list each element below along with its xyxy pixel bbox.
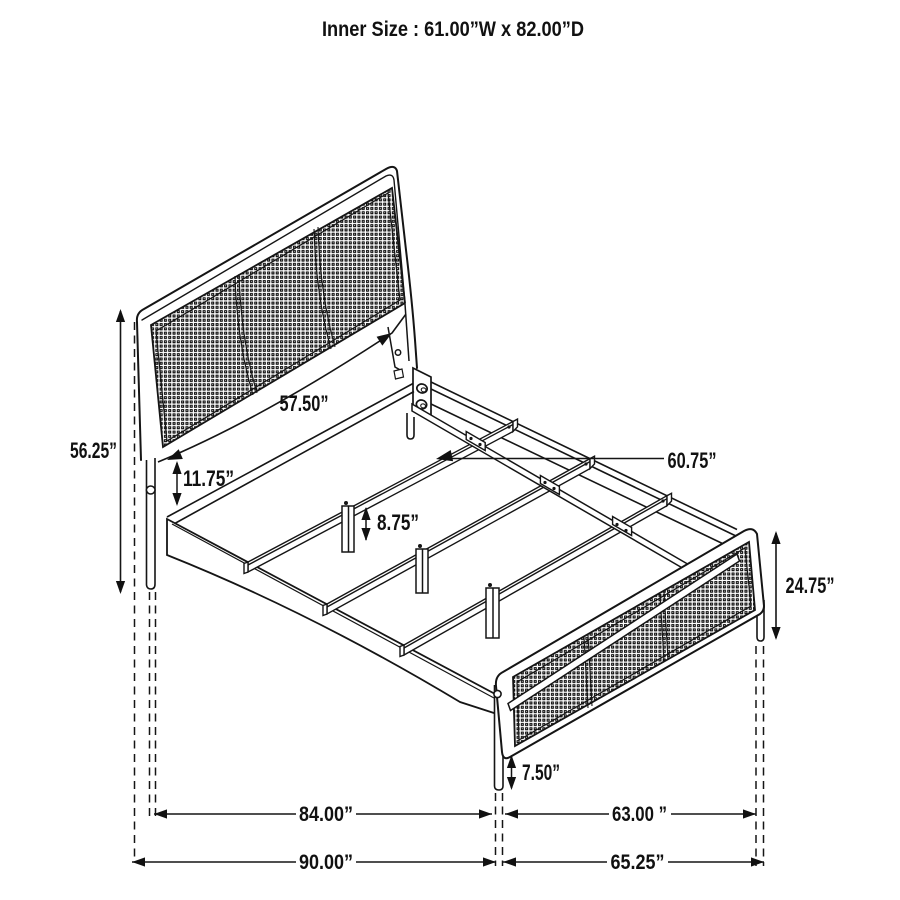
svg-text:56.25”: 56.25”	[70, 438, 117, 463]
svg-text:8.75”: 8.75”	[377, 510, 419, 535]
svg-text:65.25”: 65.25”	[611, 851, 665, 874]
svg-text:7.50”: 7.50”	[522, 760, 560, 785]
svg-text:57.50”: 57.50”	[280, 391, 329, 416]
svg-text:60.75”: 60.75”	[668, 448, 717, 473]
svg-text:Inner Size : 61.00”W x 82.00”D: Inner Size : 61.00”W x 82.00”D	[322, 18, 584, 41]
svg-text:11.75”: 11.75”	[183, 466, 234, 491]
svg-text:24.75”: 24.75”	[786, 573, 835, 598]
svg-text:90.00”: 90.00”	[299, 851, 353, 874]
svg-text:63.00 ”: 63.00 ”	[612, 803, 667, 826]
svg-text:84.00”: 84.00”	[299, 803, 353, 826]
